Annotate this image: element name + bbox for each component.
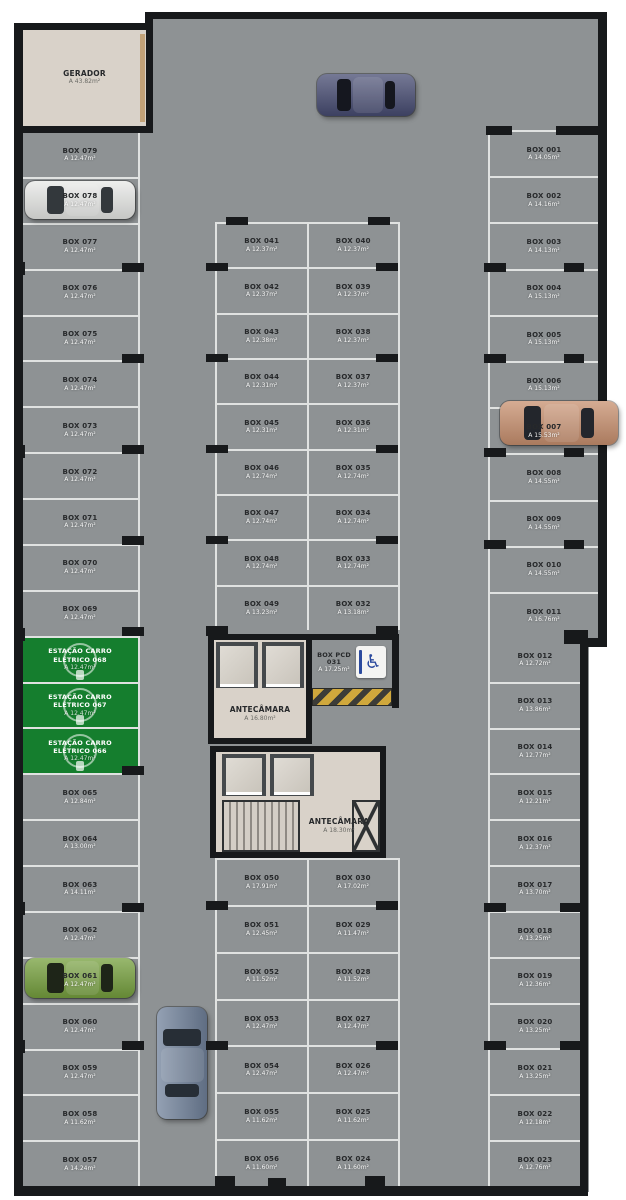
stall-area: A 12.74m² [246, 519, 277, 525]
stall-row: BOX 044A 12.31m²BOX 037A 12.37m² [217, 358, 398, 403]
pilaster [122, 766, 144, 775]
right-wall-upper [598, 12, 607, 646]
pilaster [14, 902, 25, 915]
stall-label: BOX 065 [63, 790, 98, 798]
stall-area: A 13.23m² [246, 610, 277, 616]
pilaster [122, 1041, 144, 1050]
stall-area: A 15.13m² [528, 294, 559, 300]
stall-area: A 11.52m² [246, 977, 277, 983]
accessible-parking-sign: ♿ [356, 646, 386, 678]
pilaster [486, 126, 512, 135]
pilaster [484, 540, 506, 549]
stall-label: BOX 009 [527, 516, 562, 524]
stall-area: A 12.47m² [64, 936, 95, 942]
stall-area: A 12.74m² [246, 474, 277, 480]
stall-area: A 14.55m² [528, 479, 559, 485]
stall-area: A 13.25m² [519, 1074, 550, 1080]
stall-area: A 12.74m² [338, 564, 369, 570]
car-rear-window [101, 964, 113, 991]
car-steel [157, 1007, 207, 1119]
stall-area: A 13.25m² [519, 1028, 550, 1034]
parking-stall-box-043: BOX 043A 12.38m² [217, 315, 307, 358]
generator-bottom-wall [14, 126, 153, 133]
antecamara-lower-label: ANTECÂMARA [309, 818, 369, 826]
sign-blue-bar [359, 650, 362, 674]
stall-area: A 12.47m² [64, 432, 95, 438]
parking-stall-box-059: BOX 059A 12.47m² [22, 1049, 138, 1095]
pilaster [206, 626, 228, 636]
stall-area: A 15.13m² [528, 386, 559, 392]
stall-label: BOX 056 [244, 1156, 279, 1164]
stall-area: A 12.47m² [338, 1024, 369, 1030]
stall-area: A 12.47m² [64, 665, 95, 671]
stall-area: A 12.77m² [519, 753, 550, 759]
parking-stall-box-008: BOX 008A 14.55m² [490, 453, 598, 499]
pcd-stall-name: BOX PCD 031 [310, 652, 358, 666]
stall-row: BOX 043A 12.38m²BOX 038A 12.37m² [217, 313, 398, 358]
elevator-shaft [222, 754, 266, 796]
stall-label: BOX 020 [518, 1019, 553, 1027]
stall-label: BOX 019 [518, 973, 553, 981]
middle-top-parking-block: BOX 041A 12.37m²BOX 040A 12.37m²BOX 042A… [215, 222, 400, 630]
stall-row: BOX 048A 12.74m²BOX 033A 12.74m² [217, 539, 398, 584]
parking-stall-box-014: BOX 014A 12.77m² [490, 728, 580, 774]
stall-area: A 14.24m² [64, 1166, 95, 1172]
stall-area: A 12.47m² [64, 711, 95, 717]
pilaster [14, 628, 25, 641]
pilaster [376, 263, 398, 271]
generator-room: GERADOR A 43.82m² [23, 29, 146, 126]
parking-stall-box-049: BOX 049A 13.23m² [217, 587, 307, 630]
stall-row: BOX 047A 12.74m²BOX 034A 12.74m² [217, 494, 398, 539]
top-wall-left [14, 23, 152, 30]
pilaster [560, 903, 580, 912]
car-windshield [163, 1029, 201, 1046]
car-roof [353, 77, 382, 113]
antecamara-lower: ANTECÂMARA A 18.30m² [296, 808, 382, 844]
pilaster [206, 445, 228, 453]
pilaster [206, 536, 228, 544]
parking-stall-box-064: BOX 064A 13.00m² [22, 819, 138, 865]
pilaster [368, 217, 390, 225]
parking-stall-box-074: BOX 074A 12.47m² [22, 360, 138, 406]
pilaster [564, 263, 584, 272]
stall-area: A 11.47m² [338, 931, 369, 937]
stall-row: BOX 053A 12.47m²BOX 027A 12.47m² [217, 999, 398, 1046]
right-wall-lower [580, 646, 588, 1196]
pilaster [376, 536, 398, 544]
stall-row: BOX 050A 17.91m²BOX 030A 17.02m² [217, 860, 398, 905]
stall-area: A 17.02m² [338, 884, 369, 890]
pcd-right-wall [392, 634, 399, 708]
stall-area: A 12.36m² [519, 982, 550, 988]
stall-label: BOX 058 [63, 1111, 98, 1119]
right-parking-column-upper: BOX 001A 14.05m²BOX 002A 14.16m²BOX 003A… [488, 130, 598, 638]
stall-area: A 17.91m² [246, 884, 277, 890]
top-wall-right [150, 12, 607, 19]
stall-label: ELÉTRICO 067 [53, 702, 106, 709]
antecamara-upper: ANTECÂMARA A 16.80m² [210, 692, 310, 736]
parking-stall-box-048: BOX 048A 12.74m² [217, 541, 307, 584]
stall-row: BOX 045A 12.31m²BOX 036A 12.31m² [217, 403, 398, 448]
stall-area: A 12.18m² [519, 1120, 550, 1126]
stall-area: A 12.47m² [246, 1071, 277, 1077]
generator-door [140, 34, 145, 122]
stall-row: BOX 054A 12.47m²BOX 026A 12.47m² [217, 1045, 398, 1092]
stall-label: BOX 062 [63, 927, 98, 935]
pilaster [564, 540, 584, 549]
pilaster [365, 1176, 385, 1186]
parking-stall-box-023: BOX 023A 12.76m² [490, 1140, 580, 1186]
stall-area: A 12.47m² [64, 1028, 95, 1034]
stall-row: BOX 042A 12.37m²BOX 039A 12.37m² [217, 267, 398, 312]
pilaster [484, 263, 506, 272]
pilaster [376, 445, 398, 453]
parking-stall-box-052: BOX 052A 11.52m² [217, 954, 307, 999]
stall-area: A 14.13m² [528, 248, 559, 254]
stall-area: A 11.62m² [246, 1118, 277, 1124]
stall-row: BOX 046A 12.74m²BOX 035A 12.74m² [217, 449, 398, 494]
parking-stall-box-029: BOX 029A 11.47m² [307, 907, 399, 952]
pilaster [484, 448, 506, 457]
parking-stall-box-050: BOX 050A 17.91m² [217, 860, 307, 905]
pilaster [14, 445, 25, 458]
parking-stall-box-016: BOX 016A 12.37m² [490, 819, 580, 865]
stall-area: A 13.18m² [338, 610, 369, 616]
parking-stall-box-021: BOX 021A 13.25m² [490, 1048, 580, 1094]
stall-area: A 12.45m² [246, 931, 277, 937]
stall-area: A 12.76m² [519, 1165, 550, 1171]
middle-bottom-parking-block: BOX 050A 17.91m²BOX 030A 17.02m²BOX 051A… [215, 858, 400, 1186]
stall-area: A 12.31m² [246, 428, 277, 434]
stall-label: BOX 032 [336, 601, 371, 609]
parking-stall-box-030: BOX 030A 17.02m² [307, 860, 399, 905]
stall-label: BOX 024 [336, 1156, 371, 1164]
parking-stall-box-062: BOX 062A 12.47m² [22, 911, 138, 957]
stall-label: BOX 076 [63, 285, 98, 293]
stall-area: A 12.47m² [246, 1024, 277, 1030]
stall-label: BOX 069 [63, 606, 98, 614]
car-navy [317, 74, 415, 116]
pilaster [564, 354, 584, 363]
stall-label: BOX 070 [63, 560, 98, 568]
parking-stall-esta-o-carro-el-trico-068: ESTAÇÃO CARROELÉTRICO 068A 12.47m² [22, 636, 138, 682]
stall-label: BOX 038 [336, 329, 371, 337]
stall-area: A 12.47m² [64, 1074, 95, 1080]
stall-area: A 14.55m² [528, 525, 559, 531]
parking-stall-box-028: BOX 028A 11.52m² [307, 954, 399, 999]
background-top-left [0, 0, 152, 23]
stall-row: BOX 041A 12.37m²BOX 040A 12.37m² [217, 224, 398, 267]
pilaster [206, 263, 228, 271]
stall-label: BOX 030 [336, 875, 371, 883]
stall-area: A 12.37m² [246, 292, 277, 298]
stall-area: A 12.37m² [338, 338, 369, 344]
stall-label: BOX 060 [63, 1019, 98, 1027]
stall-area: A 14.55m² [528, 571, 559, 577]
parking-stall-box-071: BOX 071A 12.47m² [22, 498, 138, 544]
parking-stall-box-054: BOX 054A 12.47m² [217, 1047, 307, 1092]
pilaster [122, 445, 144, 454]
parking-stall-box-077: BOX 077A 12.47m² [22, 223, 138, 269]
parking-stall-box-039: BOX 039A 12.37m² [307, 269, 399, 312]
stall-area: A 12.47m² [64, 569, 95, 575]
parking-stall-box-040: BOX 040A 12.37m² [307, 224, 399, 267]
stall-label: BOX 022 [518, 1111, 553, 1119]
stall-area: A 12.47m² [64, 982, 95, 988]
parking-stall-box-013: BOX 013A 13.86m² [490, 682, 580, 728]
stall-label: BOX 078 [63, 193, 98, 201]
stall-area: A 12.47m² [64, 615, 95, 621]
stall-label: BOX 049 [244, 601, 279, 609]
parking-stall-box-060: BOX 060A 12.47m² [22, 1003, 138, 1049]
parking-stall-box-001: BOX 001A 14.05m² [490, 132, 598, 176]
parking-stall-box-044: BOX 044A 12.31m² [217, 360, 307, 403]
stall-label: BOX 046 [244, 465, 279, 473]
stall-area: A 16.76m² [528, 617, 559, 623]
stall-label: BOX 010 [527, 562, 562, 570]
parking-stall-box-072: BOX 072A 12.47m² [22, 452, 138, 498]
car-roof [161, 1048, 204, 1082]
stall-area: A 12.47m² [64, 156, 95, 162]
pilaster [376, 354, 398, 362]
stall-area: A 12.47m² [64, 202, 95, 208]
stall-area: A 11.62m² [64, 1120, 95, 1126]
antecamara-upper-label: ANTECÂMARA [230, 706, 290, 714]
pilaster [484, 903, 506, 912]
stall-label: BOX 074 [63, 377, 98, 385]
left-wall [14, 23, 23, 1196]
parking-stall-box-069: BOX 069A 12.47m² [22, 590, 138, 636]
parking-stall-box-012: BOX 012A 12.72m² [490, 638, 580, 682]
stall-label: BOX 051 [244, 922, 279, 930]
stall-row: BOX 055A 11.62m²BOX 025A 11.62m² [217, 1092, 398, 1139]
antecamara-upper-area: A 16.80m² [244, 716, 275, 722]
pilaster [122, 627, 144, 636]
stall-label: BOX 050 [244, 875, 279, 883]
pilaster [206, 354, 228, 362]
stall-area: A 13.86m² [519, 707, 550, 713]
parking-stall-esta-o-carro-el-trico-067: ESTAÇÃO CARROELÉTRICO 067A 12.47m² [22, 682, 138, 728]
stall-label: BOX 057 [63, 1157, 98, 1165]
pilaster [376, 901, 398, 910]
parking-stall-box-035: BOX 035A 12.74m² [307, 451, 399, 494]
stall-area: A 12.47m² [64, 756, 95, 762]
stall-label: BOX 075 [63, 331, 98, 339]
stall-label: BOX 014 [518, 744, 553, 752]
stall-label: BOX 008 [527, 470, 562, 478]
stall-area: A 12.47m² [64, 523, 95, 529]
pilaster [376, 626, 398, 636]
parking-stall-box-057: BOX 057A 14.24m² [22, 1140, 138, 1186]
parking-stall-box-073: BOX 073A 12.47m² [22, 406, 138, 452]
car-windshield [337, 79, 352, 111]
elevator-shaft [262, 642, 304, 688]
parking-stall-box-009: BOX 009A 14.55m² [490, 500, 598, 546]
wheelchair-icon: ♿ [364, 653, 381, 672]
parking-stall-box-036: BOX 036A 12.31m² [307, 405, 399, 448]
car-windshield [47, 186, 64, 215]
pilaster [206, 901, 228, 910]
garage-floor-plan: BOX 079A 12.47m²BOX 078A 12.47m²BOX 077A… [0, 0, 626, 1200]
parking-stall-box-022: BOX 022A 12.18m² [490, 1094, 580, 1140]
parking-stall-box-079: BOX 079A 12.47m² [22, 133, 138, 177]
stall-area: A 13.70m² [519, 890, 550, 896]
stall-row: BOX 051A 12.45m²BOX 029A 11.47m² [217, 905, 398, 952]
stall-area: A 12.37m² [338, 383, 369, 389]
stall-area: A 12.47m² [64, 248, 95, 254]
bottom-wall [14, 1186, 588, 1196]
stall-area: A 14.16m² [528, 202, 559, 208]
stall-area: A 12.38m² [246, 338, 277, 344]
background-right-upper [607, 0, 626, 648]
generator-room-area: A 43.82m² [69, 79, 100, 85]
stall-label: BOX 016 [518, 836, 553, 844]
stall-area: A 12.74m² [338, 519, 369, 525]
stall-label: BOX 002 [527, 193, 562, 201]
stall-area: A 15.53m² [528, 433, 559, 439]
stall-label: BOX 040 [336, 238, 371, 246]
stall-area: A 12.37m² [338, 292, 369, 298]
parking-stall-box-015: BOX 015A 12.21m² [490, 773, 580, 819]
stall-area: A 12.47m² [64, 477, 95, 483]
pilaster [560, 1041, 580, 1050]
elevator-shaft [216, 642, 258, 688]
pilaster [556, 126, 598, 135]
parking-stall-box-045: BOX 045A 12.31m² [217, 405, 307, 448]
stall-label: BOX 025 [336, 1109, 371, 1117]
parking-stall-box-026: BOX 026A 12.47m² [307, 1047, 399, 1092]
staircase [222, 800, 300, 852]
stall-area: A 11.60m² [246, 1165, 277, 1171]
parking-stall-box-004: BOX 004A 15.13m² [490, 269, 598, 315]
pilaster [14, 262, 25, 275]
stall-area: A 12.74m² [338, 474, 369, 480]
stall-label: BOX 035 [336, 465, 371, 473]
stall-row: BOX 049A 13.23m²BOX 032A 13.18m² [217, 585, 398, 630]
stall-label: BOX 003 [527, 239, 562, 247]
car-windshield [47, 963, 64, 993]
stall-label: BOX 015 [518, 790, 553, 798]
stall-label: ELÉTRICO 068 [53, 657, 106, 664]
stall-area: A 12.72m² [519, 661, 550, 667]
stall-label: BOX 044 [244, 374, 279, 382]
pilaster [268, 1178, 286, 1188]
parking-stall-box-033: BOX 033A 12.74m² [307, 541, 399, 584]
stall-label: BOX 013 [518, 698, 553, 706]
pcd-stall-label: BOX PCD 031 A 17.25m² [310, 652, 358, 673]
stall-area: A 11.62m² [338, 1118, 369, 1124]
stall-area: A 12.37m² [246, 247, 277, 253]
stall-label: BOX 073 [63, 423, 98, 431]
stall-area: A 14.05m² [528, 155, 559, 161]
stall-row: BOX 052A 11.52m²BOX 028A 11.52m² [217, 952, 398, 999]
stall-area: A 12.21m² [519, 799, 550, 805]
parking-stall-box-010: BOX 010A 14.55m² [490, 546, 598, 592]
stall-area: A 13.25m² [519, 936, 550, 942]
stall-area: A 11.60m² [338, 1165, 369, 1171]
pilaster [206, 1041, 228, 1050]
parking-stall-box-065: BOX 065A 12.84m² [22, 773, 138, 819]
stall-label: BOX 077 [63, 239, 98, 247]
car-rear-window [101, 187, 113, 213]
parking-stall-box-032: BOX 032A 13.18m² [307, 587, 399, 630]
parking-stall-box-046: BOX 046A 12.74m² [217, 451, 307, 494]
parking-stall-box-042: BOX 042A 12.37m² [217, 269, 307, 312]
stall-label: BOX 043 [244, 329, 279, 337]
pilaster [14, 1040, 25, 1053]
stall-area: A 12.74m² [246, 564, 277, 570]
background-right-lower [589, 646, 626, 1200]
parking-stall-box-070: BOX 070A 12.47m² [22, 544, 138, 590]
parking-stall-esta-o-carro-el-trico-066: ESTAÇÃO CARROELÉTRICO 066A 12.47m² [22, 727, 138, 773]
parking-stall-box-037: BOX 037A 12.37m² [307, 360, 399, 403]
stall-area: A 11.52m² [338, 977, 369, 983]
stall-area: A 14.11m² [64, 890, 95, 896]
parking-stall-box-076: BOX 076A 12.47m² [22, 269, 138, 315]
stall-area: A 12.84m² [64, 799, 95, 805]
stall-label: BOX 034 [336, 510, 371, 518]
antecamara-lower-area: A 18.30m² [323, 828, 354, 834]
pilaster [376, 1041, 398, 1050]
parking-stall-box-063: BOX 063A 14.11m² [22, 865, 138, 911]
parking-stall-box-041: BOX 041A 12.37m² [217, 224, 307, 267]
stall-label: BOX 061 [63, 973, 98, 981]
stall-area: A 12.37m² [338, 247, 369, 253]
pilaster [122, 536, 144, 545]
stall-label: BOX 007 [527, 424, 562, 432]
car-rear-window [385, 81, 396, 110]
left-parking-column: BOX 079A 12.47m²BOX 078A 12.47m²BOX 077A… [22, 133, 140, 1186]
stall-area: A 12.31m² [246, 383, 277, 389]
parking-stall-box-047: BOX 047A 12.74m² [217, 496, 307, 539]
stall-label: ESTAÇÃO CARRO [48, 648, 112, 655]
stall-label: BOX 047 [244, 510, 279, 518]
parking-stall-box-051: BOX 051A 12.45m² [217, 907, 307, 952]
stall-label: BOX 004 [527, 285, 562, 293]
pilaster [484, 1041, 506, 1050]
pilaster [564, 448, 584, 457]
pilaster [484, 354, 506, 363]
parking-stall-box-055: BOX 055A 11.62m² [217, 1094, 307, 1139]
pilaster [564, 630, 588, 644]
stall-label: BOX 059 [63, 1065, 98, 1073]
parking-stall-box-003: BOX 003A 14.13m² [490, 222, 598, 268]
parking-stall-box-038: BOX 038A 12.37m² [307, 315, 399, 358]
pilaster [122, 263, 144, 272]
stall-area: A 13.00m² [64, 844, 95, 850]
stall-area: A 15.13m² [528, 340, 559, 346]
pilaster [226, 217, 248, 225]
elevator-shaft [270, 754, 314, 796]
stall-label: BOX 041 [244, 238, 279, 246]
pilaster [122, 903, 144, 912]
pcd-stall-area: A 17.25m² [318, 667, 349, 673]
generator-right-wall [146, 19, 153, 133]
stall-label: BOX 055 [244, 1109, 279, 1117]
parking-stall-box-058: BOX 058A 11.62m² [22, 1094, 138, 1140]
parking-stall-box-034: BOX 034A 12.74m² [307, 496, 399, 539]
parking-stall-box-018: BOX 018A 13.25m² [490, 911, 580, 957]
generator-room-label: GERADOR [63, 70, 106, 78]
stall-area: A 12.37m² [519, 845, 550, 851]
parking-stall-box-025: BOX 025A 11.62m² [307, 1094, 399, 1139]
stall-label: BOX 021 [518, 1065, 553, 1073]
parking-stall-box-027: BOX 027A 12.47m² [307, 1001, 399, 1046]
car-rear-window [165, 1084, 199, 1096]
no-parking-hatch-strip [312, 688, 392, 706]
stall-label: BOX 029 [336, 922, 371, 930]
